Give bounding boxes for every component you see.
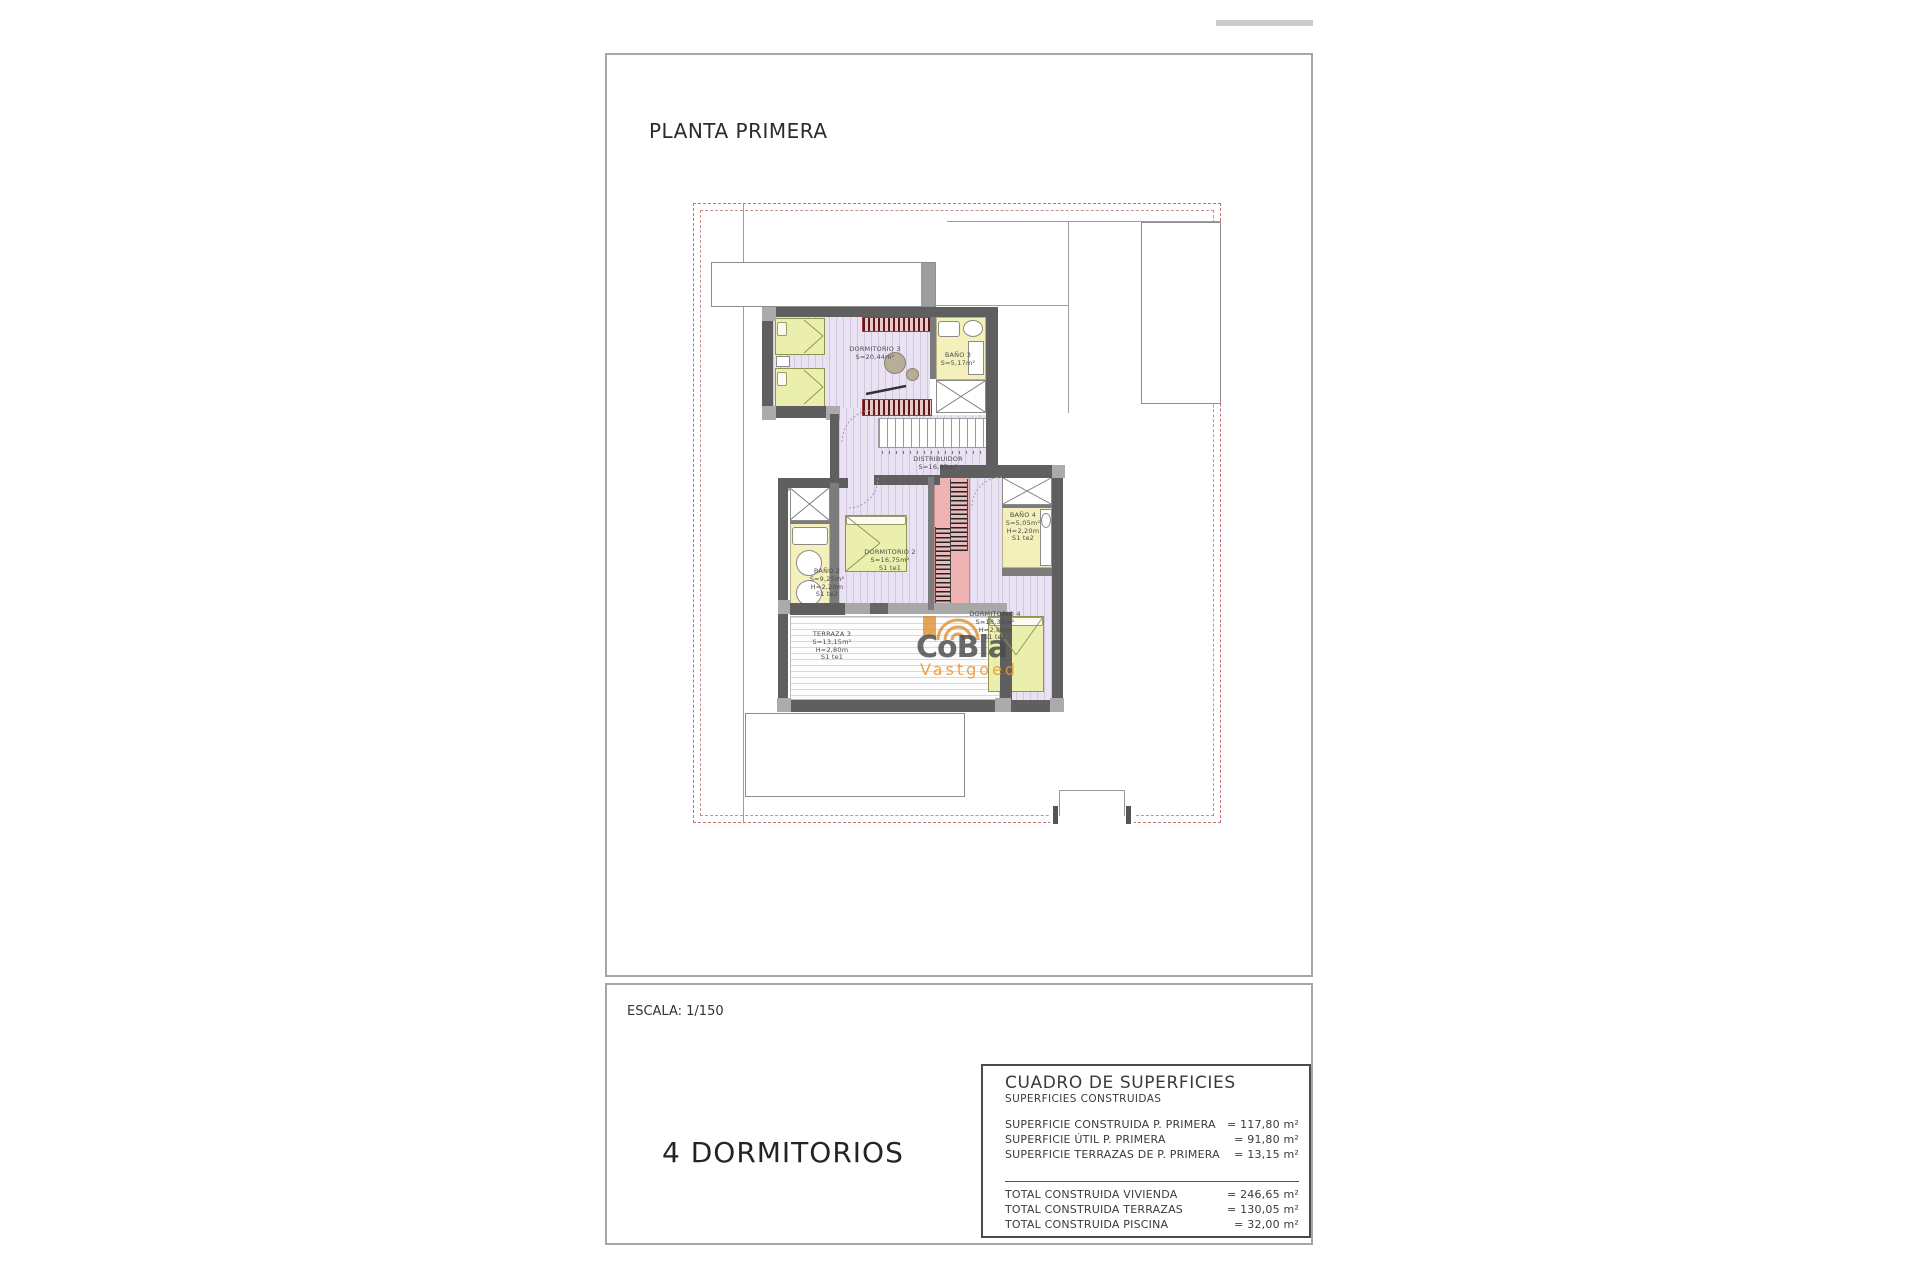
wall-top-dorm3 (776, 307, 938, 317)
surface-row: SUPERFICIE TERRAZAS DE P. PRIMERA= 13,15… (1005, 1147, 1299, 1162)
wall-column (762, 307, 776, 321)
neighbor-building-top (711, 262, 936, 307)
wall-column (762, 406, 776, 420)
stair-flight-upper (950, 479, 968, 551)
surface-total-row: TOTAL CONSTRUIDA VIVIENDA= 246,65 m² (1005, 1187, 1299, 1202)
wall-hall-left (830, 414, 839, 483)
site-gate-frame (1059, 790, 1125, 816)
neighbor-wall-column (921, 263, 935, 306)
surfaces-table-subtitle: SUPERFICIES CONSTRUIDAS (1005, 1093, 1299, 1105)
neighbor-outline-vertical (1068, 222, 1069, 413)
wall-column (995, 698, 1011, 712)
wall-stair-left (928, 477, 934, 610)
wardrobe-dormitorio-3-bottom (862, 399, 932, 416)
surface-total-row: TOTAL CONSTRUIDA PISCINA= 32,00 m² (1005, 1217, 1299, 1232)
toilet-bano-3 (963, 320, 983, 337)
wall-below-shower (986, 415, 998, 470)
wall-left-dorm3 (762, 321, 773, 406)
surfaces-table: CUADRO DE SUPERFICIES SUPERFICIES CONSTR… (981, 1064, 1311, 1238)
shower-bano-3 (936, 380, 986, 413)
nightstand-dormitorio-3 (776, 356, 790, 367)
room-label-distribuidor: DISTRIBUIDOR S=16,85m² (902, 456, 974, 472)
wall-bano4-bottom (1002, 568, 1052, 576)
watermark-tagline: Vastgoed (920, 660, 1018, 679)
room-label-bano-3: BAÑO 3 S=5,17m² (938, 352, 978, 368)
wall-column (1050, 698, 1064, 712)
closet-dormitorio-2 (790, 487, 830, 521)
room-label-dormitorio-2: DORMITORIO 2 S=16,75m² S1 te1 (860, 549, 920, 572)
surface-row: SUPERFICIE CONSTRUIDA P. PRIMERA= 117,80… (1005, 1117, 1299, 1132)
wall-mid-left-lower (778, 614, 788, 698)
wall-dorm3-bano3 (930, 317, 936, 379)
neighbor-outline-step (936, 305, 1068, 306)
wardrobe-dormitorio-3-top (862, 317, 932, 332)
room-label-terraza-3: TERRAZA 3 S=13,15m² H=2,80m S1 te1 (804, 631, 860, 662)
scan-artifact-strip (1216, 20, 1313, 26)
floor-plan-sheet: PLANTA PRIMERA (0, 0, 1920, 1280)
surface-total-row: TOTAL CONSTRUIDA TERRAZAS= 130,05 m² (1005, 1202, 1299, 1217)
wall-column (777, 698, 791, 712)
wall-closet4-divider (1002, 505, 1052, 508)
neighbor-building-right (1141, 222, 1221, 404)
surfaces-table-title: CUADRO DE SUPERFICIES (1005, 1073, 1299, 1093)
closet-dormitorio-4 (1002, 477, 1052, 505)
wall-bottom (777, 700, 1064, 712)
plant-circle-small (906, 368, 919, 381)
pillow-bed-2 (846, 516, 906, 525)
stair-step-numbers (882, 451, 994, 454)
stair-flight-lower (935, 527, 951, 606)
room-label-bano-2: BAÑO 2 S=9,25m² H=2,20m S1 te2 (804, 568, 850, 599)
room-label-bano-4: BAÑO 4 S=5,05m² H=2,20m S1 te2 (1000, 512, 1046, 543)
sink-bano-2 (792, 527, 828, 545)
wall-right-bano3 (986, 307, 998, 415)
bedroom-count-label: 4 DORMITORIOS (662, 1136, 904, 1169)
scale-label: ESCALA: 1/150 (627, 1004, 724, 1019)
hall-stairs (878, 418, 998, 448)
wall-bano2-bottom (790, 603, 845, 615)
terrace-rail-post (870, 603, 888, 614)
site-gate-jamb-right (1126, 806, 1131, 824)
wall-column (1052, 465, 1065, 478)
sink-bano-3 (938, 321, 960, 337)
room-label-dormitorio-3: DORMITORIO 3 S=20,44m² (840, 346, 910, 362)
wall-top-bano3 (938, 307, 988, 317)
wall-bottom-dorm3 (776, 406, 826, 418)
neighbor-building-bottom (745, 713, 965, 797)
site-gate-jamb-left (1053, 806, 1058, 824)
surface-row: SUPERFICIE ÚTIL P. PRIMERA= 91,80 m² (1005, 1132, 1299, 1147)
pillow-bed-3a (777, 322, 787, 336)
page-title: PLANTA PRIMERA (649, 119, 828, 143)
wall-closet2-divider (790, 521, 830, 524)
wall-mid-left-upper (778, 488, 788, 600)
surfaces-table-divider (1005, 1181, 1299, 1182)
wall-right (1052, 478, 1063, 712)
pillow-bed-3b (777, 372, 787, 386)
